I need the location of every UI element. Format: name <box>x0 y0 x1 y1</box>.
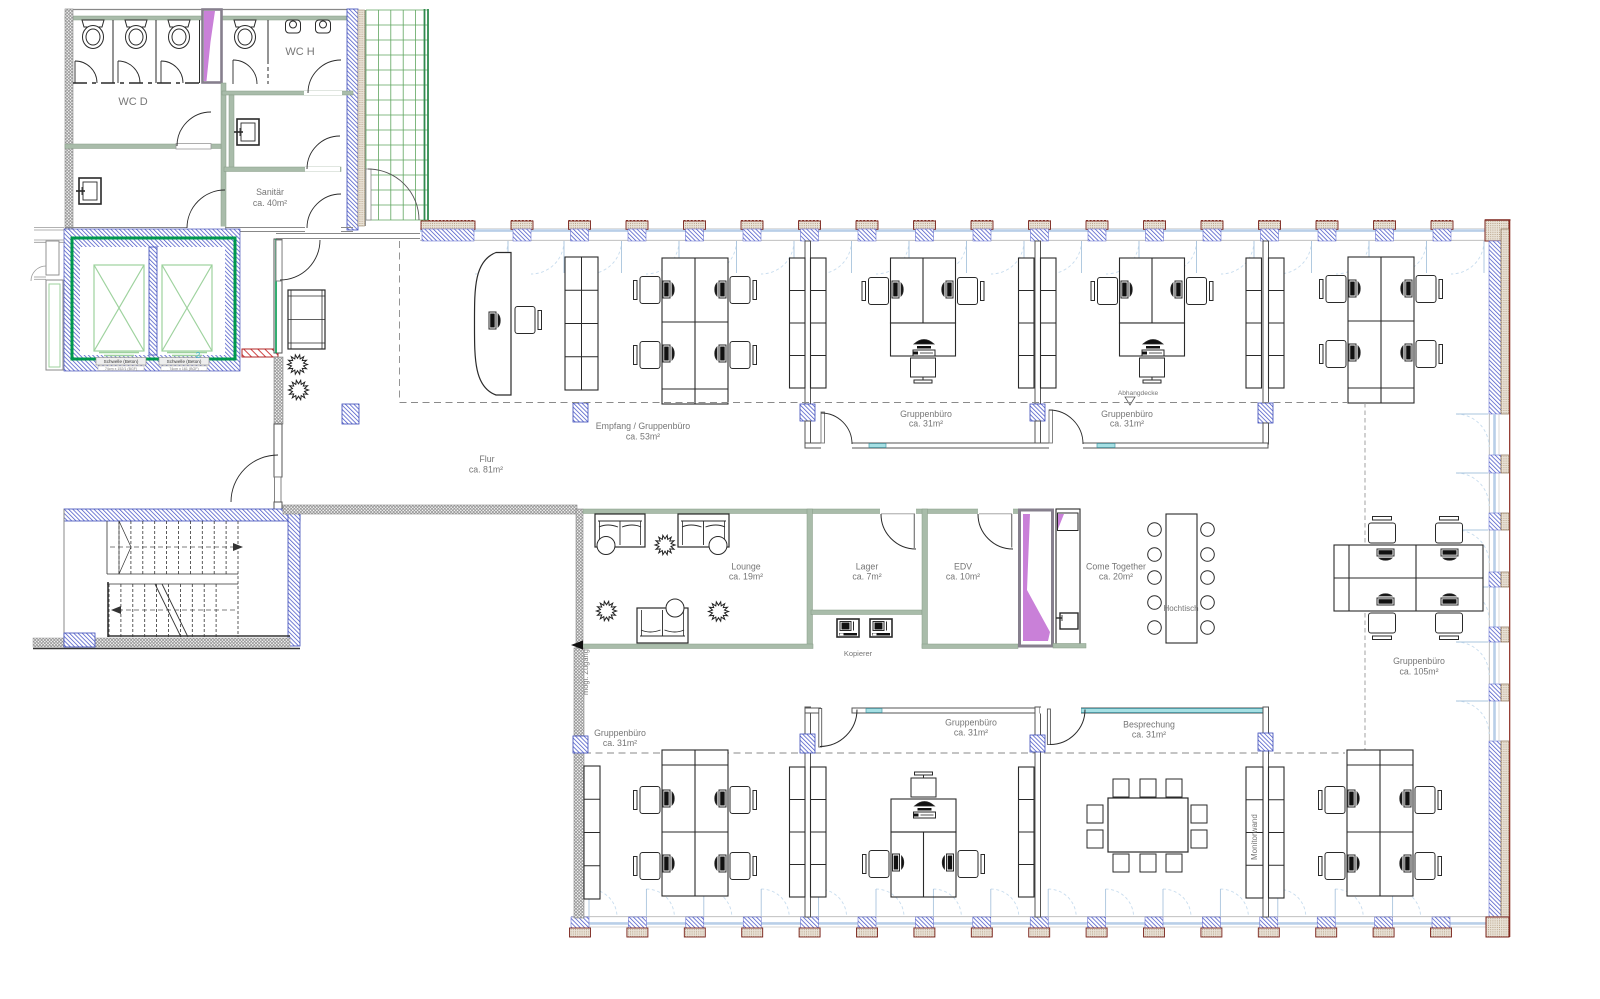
svg-text:ca. 10m²: ca. 10m² <box>946 572 980 582</box>
svg-text:Gruppenbüro: Gruppenbüro <box>1393 656 1445 666</box>
svg-text:ca. 31m²: ca. 31m² <box>1110 419 1144 429</box>
svg-text:ca. 31m²: ca. 31m² <box>1132 730 1166 740</box>
svg-text:2: 2 <box>196 351 201 360</box>
svg-text:Abhangdecke: Abhangdecke <box>1118 390 1159 397</box>
svg-text:Gruppenbüro: Gruppenbüro <box>900 409 952 419</box>
svg-text:Sanitär: Sanitär <box>256 187 284 197</box>
svg-text:Gruppenbüro: Gruppenbüro <box>594 728 646 738</box>
svg-text:EDV: EDV <box>954 562 972 572</box>
svg-text:Schwelle (Beton): Schwelle (Beton) <box>104 359 139 364</box>
svg-text:74cm x 161 (BGF): 74cm x 161 (BGF) <box>169 367 198 371</box>
svg-text:ca. 19m²: ca. 19m² <box>729 572 763 582</box>
svg-text:Lounge: Lounge <box>731 562 760 572</box>
svg-text:ca. 81m²: ca. 81m² <box>469 465 503 475</box>
svg-text:Lager: Lager <box>856 562 879 572</box>
svg-text:ca. 7m²: ca. 7m² <box>852 572 881 582</box>
svg-text:WC H: WC H <box>285 46 314 58</box>
svg-text:ca. 40m²: ca. 40m² <box>253 198 287 208</box>
svg-text:ca. 31m²: ca. 31m² <box>603 738 637 748</box>
svg-text:Besprechung: Besprechung <box>1123 720 1175 730</box>
svg-text:ca. 53m²: ca. 53m² <box>626 432 660 442</box>
svg-text:Hochtisch: Hochtisch <box>1163 604 1198 613</box>
svg-text:ca. 20m²: ca. 20m² <box>1099 572 1133 582</box>
svg-text:ca. 105m²: ca. 105m² <box>1399 667 1438 677</box>
svg-text:WC D: WC D <box>118 96 147 108</box>
svg-text:Flur: Flur <box>479 454 494 464</box>
svg-text:Come Together: Come Together <box>1086 562 1146 572</box>
svg-text:ca. 31m²: ca. 31m² <box>954 728 988 738</box>
svg-text:Empfang / Gruppenbüro: Empfang / Gruppenbüro <box>596 421 690 431</box>
svg-text:74cm x 152/1 (BGF): 74cm x 152/1 (BGF) <box>105 367 137 371</box>
svg-text:Gruppenbüro: Gruppenbüro <box>1101 409 1153 419</box>
svg-text:ca. 31m²: ca. 31m² <box>909 419 943 429</box>
svg-text:Gruppenbüro: Gruppenbüro <box>945 718 997 728</box>
svg-text:Kopierer: Kopierer <box>844 649 873 658</box>
svg-text:Monitorwand: Monitorwand <box>1250 814 1259 860</box>
